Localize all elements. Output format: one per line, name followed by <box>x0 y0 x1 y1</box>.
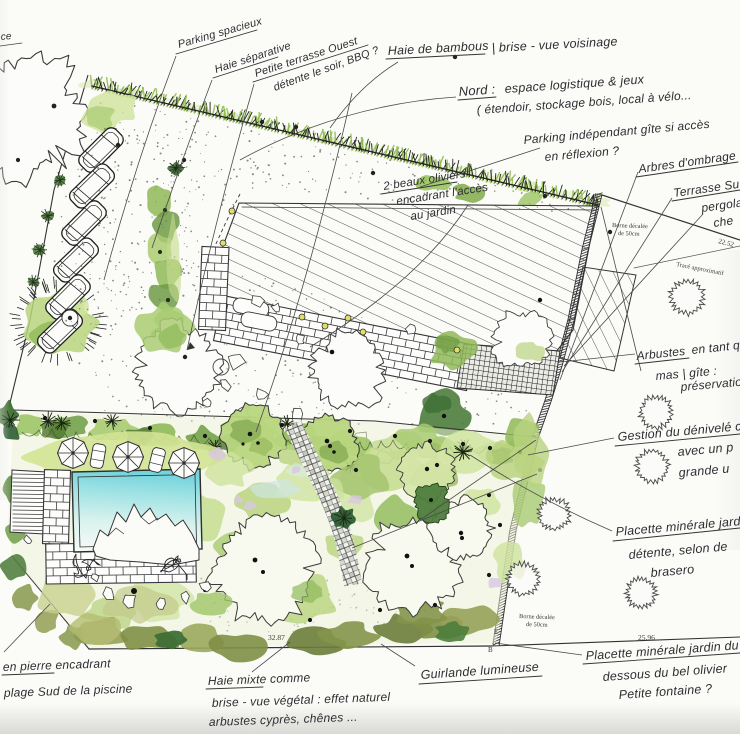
svg-text:32.87: 32.87 <box>268 633 285 642</box>
svg-text:B: B <box>488 646 493 654</box>
svg-text:Borne décalée: Borne décalée <box>519 613 555 621</box>
svg-text:E: E <box>494 628 498 636</box>
svg-text:che: che <box>712 213 734 230</box>
svg-text:de 50cm: de 50cm <box>618 230 640 238</box>
svg-text:ce: ce <box>0 31 12 43</box>
svg-text:de 50cm: de 50cm <box>526 621 548 629</box>
svg-text:Nord :: Nord : <box>458 81 496 99</box>
svg-text:25.96: 25.96 <box>638 633 655 642</box>
